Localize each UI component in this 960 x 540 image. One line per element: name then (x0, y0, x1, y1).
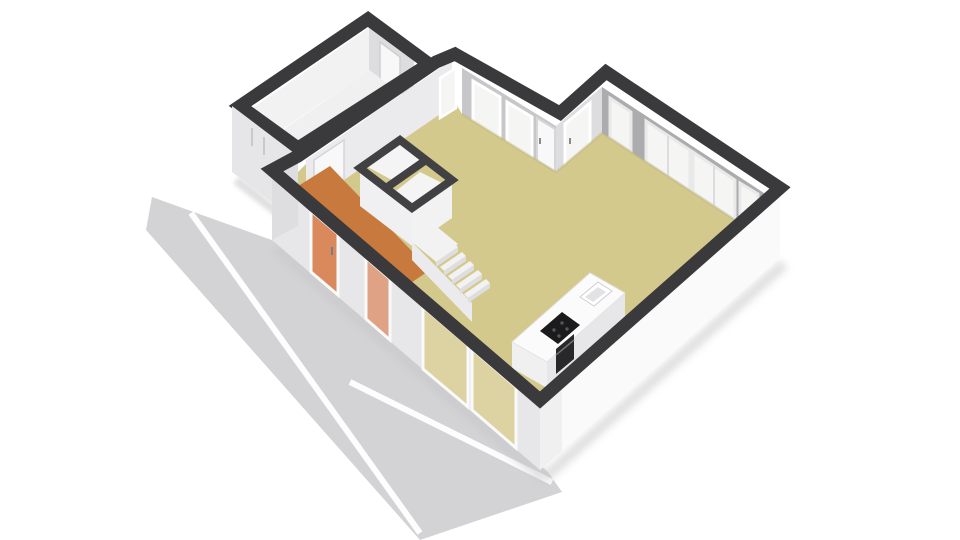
burner (552, 328, 555, 331)
burner (557, 334, 560, 337)
floorplan-svg (0, 0, 960, 540)
burner (560, 321, 563, 324)
burner (565, 327, 568, 330)
floorplan-render (0, 0, 960, 540)
garage-hall-window (440, 68, 456, 118)
